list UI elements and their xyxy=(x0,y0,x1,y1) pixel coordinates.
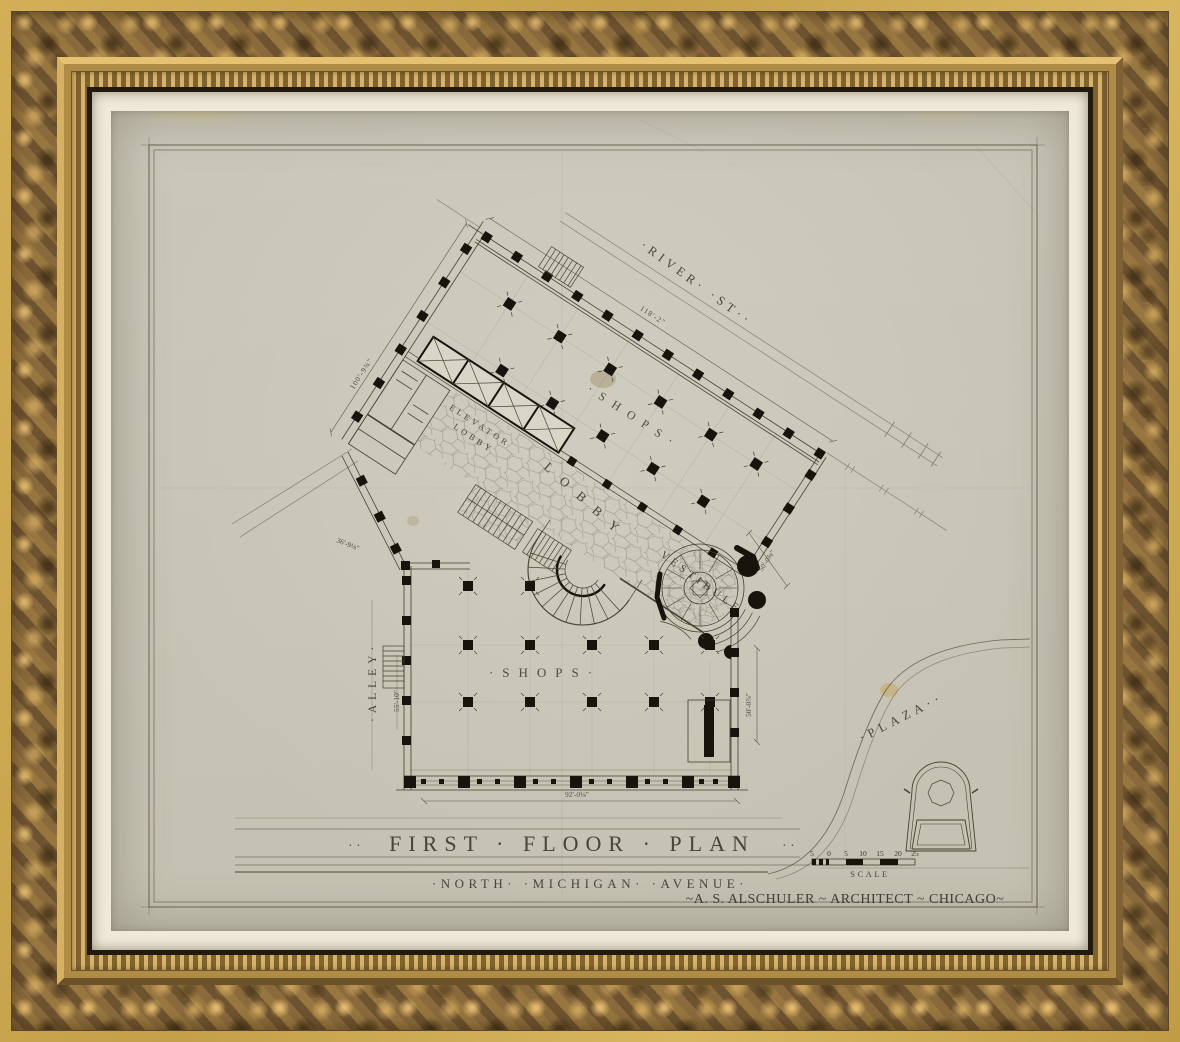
shops-lower-label: ·SHOPS· xyxy=(489,665,601,680)
dimension-east-side: 50'-0⅞" xyxy=(744,693,753,717)
scale-tick-3: 10 xyxy=(859,849,867,858)
shaft-room xyxy=(688,700,730,762)
floor-plan-drawing: ·SHOPS· ELEVATOR LOBBY 118'-2" 100'-9¾" … xyxy=(111,111,1069,931)
title-ornament-right: · · xyxy=(782,839,795,854)
scale-tick-0: 5 xyxy=(810,849,814,858)
scale-tick-5: 20 xyxy=(894,849,902,858)
alley-label: ·ALLEY· xyxy=(367,642,379,722)
architect-credit: ~A. S. ALSCHULER ~ ARCHITECT ~ CHICAGO~ xyxy=(686,892,1005,907)
scale-label: SCALE xyxy=(850,869,889,879)
title-text: FIRST · FLOOR · PLAN xyxy=(389,831,755,856)
framed-architectural-drawing: ·SHOPS· ELEVATOR LOBBY 118'-2" 100'-9¾" … xyxy=(0,0,1180,1042)
river-side-stair xyxy=(539,247,584,288)
vestibule: VESTIBULE xyxy=(656,544,766,652)
alley-street-lines xyxy=(232,449,372,770)
upper-wing: ·SHOPS· ELEVATOR LOBBY 118'-2" 100'-9¾" xyxy=(297,147,981,746)
title-ornament-left: · · xyxy=(348,839,361,854)
title-block: · · FIRST · FLOOR · PLAN · · ·NORTH· ·MI… xyxy=(348,831,1004,907)
dimension-avenue-frontage: 92'-0⅛" xyxy=(565,790,589,799)
scale-tick-2: 5 xyxy=(844,849,848,858)
dimension-river-frontage: 118'-2" xyxy=(638,304,667,327)
avenue-label: ·NORTH· ·MICHIGAN· ·AVENUE· xyxy=(432,876,748,891)
plaza-fountain xyxy=(904,762,978,851)
drawing-sheet: ·SHOPS· ELEVATOR LOBBY 118'-2" 100'-9¾" … xyxy=(111,111,1069,931)
dimension-diagonal-wall: 36'-9⅛" xyxy=(335,536,360,553)
shops-upper-label: ·SHOPS· xyxy=(585,382,684,453)
scale-tick-6: 25 xyxy=(911,849,919,858)
dimension-alley-frontage-lower: 55'-10" xyxy=(392,690,401,712)
mat-board: ·SHOPS· ELEVATOR LOBBY 118'-2" 100'-9¾" … xyxy=(92,92,1088,950)
plaza-curve xyxy=(768,639,1030,879)
scale-tick-1: 0 xyxy=(827,849,831,858)
plaza-label: ·PLAZA·· xyxy=(857,690,946,745)
scale-bar: 5 0 5 10 15 20 25 SCALE xyxy=(810,849,919,879)
scale-tick-4: 15 xyxy=(876,849,884,858)
alley-stair xyxy=(383,646,404,688)
